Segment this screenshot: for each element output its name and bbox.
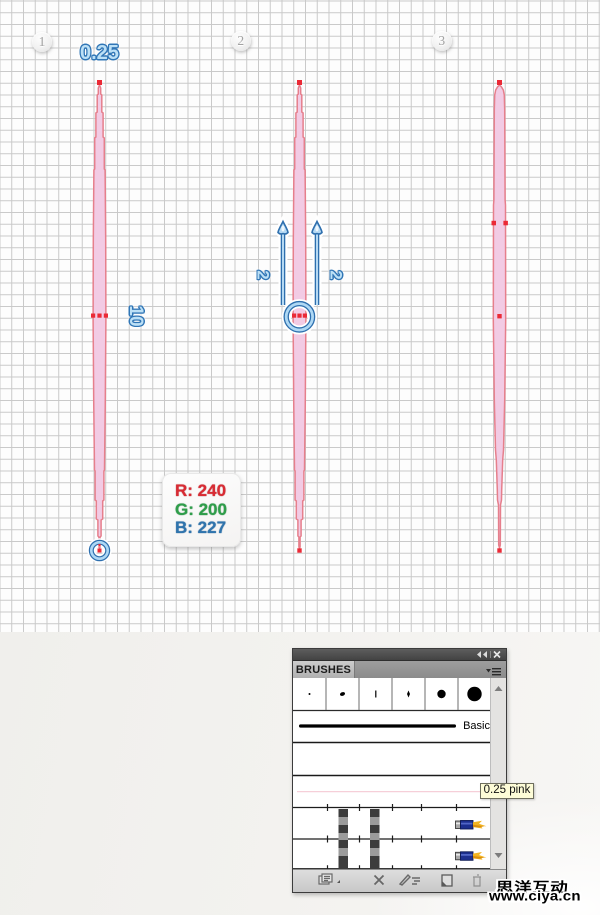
svg-text:Basic: Basic — [463, 720, 490, 732]
